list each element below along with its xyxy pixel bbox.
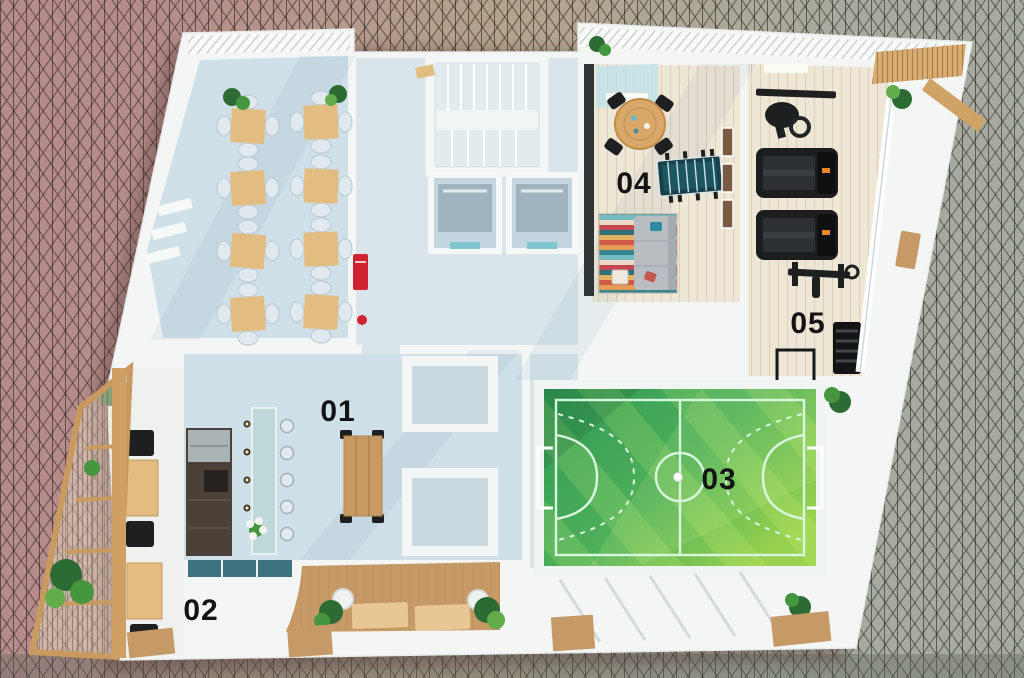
treadmill-1: [756, 148, 838, 198]
window-strip: [188, 560, 292, 577]
oven: [204, 470, 228, 492]
community-table: [340, 430, 384, 523]
wall-art: [722, 128, 733, 228]
trellis-post: [112, 368, 126, 658]
pergola-trellis: [32, 368, 130, 658]
elevator-left: [428, 172, 502, 254]
bar-counter: [244, 408, 294, 554]
treadmill-2: [756, 210, 838, 260]
pillow: [650, 222, 662, 231]
staircase: [436, 64, 538, 166]
area-label-01: 01: [320, 395, 355, 428]
restroom-upper: [402, 356, 498, 432]
elevator-right: [506, 172, 578, 254]
coffee-table: [612, 270, 628, 284]
deck-bench: [352, 602, 409, 629]
futsal-court: [534, 380, 826, 576]
lounge-rug-sofa: [599, 214, 677, 293]
ceiling-light: [764, 64, 808, 73]
area-label-03: 03: [701, 463, 736, 496]
area-label-05: 05: [790, 307, 825, 340]
area-label-04: 04: [616, 167, 651, 200]
stair-landing: [436, 110, 538, 130]
floor-plan-scene: 01 02 03 04 05: [0, 0, 1024, 678]
restroom-lower: [402, 468, 498, 556]
floor-plan-drawing: 01 02 03 04 05: [0, 0, 1024, 678]
deck-bench: [415, 604, 471, 631]
area-label-02: 02: [183, 594, 218, 627]
kitchen-cabinets: [186, 428, 232, 556]
dark-glass-wall: [584, 64, 594, 296]
soccer-ball: [674, 473, 683, 482]
